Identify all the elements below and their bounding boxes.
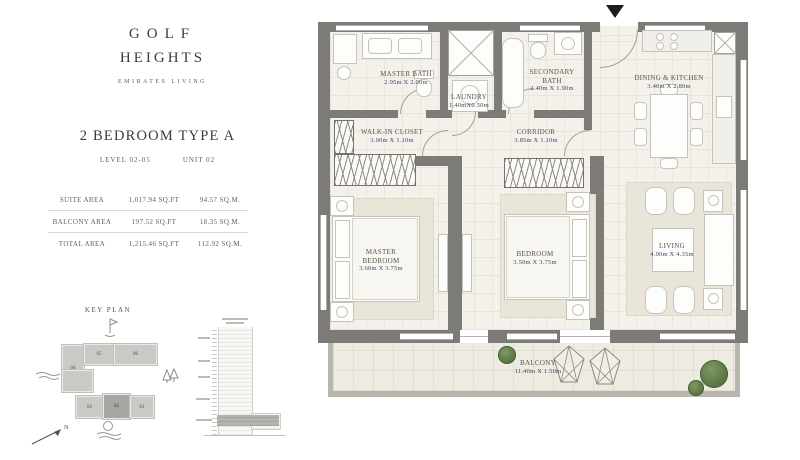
wall xyxy=(502,110,506,118)
water-icon xyxy=(34,370,62,382)
level-label: LEVEL 02-05 xyxy=(100,156,151,164)
dresser xyxy=(462,234,472,292)
stove-burner xyxy=(656,42,664,50)
stove-burner xyxy=(670,33,678,41)
sink xyxy=(368,38,392,54)
tower-level-mark xyxy=(196,398,210,400)
room-dims: 1.40mX0.50m xyxy=(438,102,500,110)
dining-chair xyxy=(634,128,647,146)
window xyxy=(400,333,453,340)
room-label-bedroom: BEDROOM 3.50m X 3.75m xyxy=(485,250,585,267)
table-row: TOTAL AREA 1,215.46 SQ.FT 112.92 SQ.M. xyxy=(48,232,248,254)
unit-label: UNIT 02 xyxy=(183,156,215,164)
area-row-sqm: 18.35 SQ.M. xyxy=(192,218,248,226)
room-dims: 4.00m X 4.35m xyxy=(622,251,722,259)
room-name: CORRIDOR xyxy=(486,128,586,137)
armchair xyxy=(645,286,667,314)
pool-icon xyxy=(103,421,113,431)
area-row-label: SUITE AREA xyxy=(48,196,116,204)
room-name: BEDROOM xyxy=(485,250,585,259)
stove-burner xyxy=(656,33,664,41)
room-label-corridor: CORRIDOR 3.85m X 1.10m xyxy=(486,128,586,145)
building-number: 02 xyxy=(114,404,119,409)
window xyxy=(740,60,747,160)
key-plan-building-highlighted: 02 xyxy=(103,394,130,419)
brand-logo-line2: HEIGHTS xyxy=(40,50,285,67)
sink xyxy=(561,37,575,50)
room-name: DINING & KITCHEN xyxy=(619,74,719,83)
plant-icon xyxy=(700,360,728,388)
shower xyxy=(333,34,357,64)
floorplan-brochure-page: GOLF HEIGHTS EMIRATES LIVING 2 BEDROOM T… xyxy=(0,0,800,460)
room-dims: 2.40m X 1.90m xyxy=(521,85,583,93)
wall xyxy=(448,156,462,343)
room-name: SECONDARY BATH xyxy=(521,68,583,85)
dining-table xyxy=(650,94,688,158)
room-dims: 3.85m X 1.10m xyxy=(486,137,586,145)
area-table: SUITE AREA 1,017.94 SQ.FT 94.57 SQ.M. BA… xyxy=(48,189,248,254)
wall xyxy=(426,110,440,118)
plant-icon xyxy=(688,380,704,396)
balcony-door-line xyxy=(460,336,488,337)
north-arrow-icon xyxy=(28,424,68,448)
table-row: BALCONY AREA 197.52 SQ.FT 18.35 SQ.M. xyxy=(48,210,248,232)
building-number: 01 xyxy=(140,405,145,410)
window xyxy=(336,25,428,31)
room-name: WALK-IN CLOSET xyxy=(342,128,442,137)
room-label-master-bedroom: MASTER BEDROOM 3.60m X 3.75m xyxy=(350,248,412,273)
sink xyxy=(398,38,422,54)
room-name: BALCONY xyxy=(488,359,588,368)
dresser xyxy=(438,234,448,292)
dining-chair xyxy=(660,158,678,169)
pillow xyxy=(335,220,350,258)
tower-level-mark xyxy=(198,337,210,339)
wall xyxy=(584,22,592,130)
area-row-sqm: 94.57 SQ.M. xyxy=(192,196,248,204)
dining-chair xyxy=(634,102,647,120)
room-name: LIVING xyxy=(622,242,722,251)
armchair xyxy=(645,187,667,215)
key-plan-building: 05 xyxy=(84,344,114,365)
room-dims: 2.95m X 2.00m xyxy=(376,79,436,87)
shaft-x-icon xyxy=(448,30,494,76)
room-label-laundry: LAUNDRY 1.40mX0.50m xyxy=(438,93,500,110)
level-unit-row: LEVEL 02-05 UNIT 02 xyxy=(25,156,290,164)
lamp-icon xyxy=(572,196,584,208)
lamp-icon xyxy=(336,200,348,212)
key-plan-building: 03 xyxy=(76,396,103,418)
key-plan-title: KEY PLAN xyxy=(60,306,156,314)
room-name: MASTER BEDROOM xyxy=(350,248,412,265)
dining-chair xyxy=(690,102,703,120)
building-number: 05 xyxy=(97,352,102,357)
side-table-decor xyxy=(708,293,719,304)
room-label-master-bath: MASTER BATH 2.95m X 2.00m xyxy=(376,70,436,87)
wall xyxy=(440,110,452,118)
building-number: 03 xyxy=(87,405,92,410)
tower-level-mark xyxy=(198,360,210,362)
waves-icon xyxy=(95,431,123,441)
area-row-sqft: 1,215.46 SQ.FT xyxy=(116,240,192,248)
room-dims: 11.40m X 1.50m xyxy=(488,368,588,376)
wall xyxy=(416,156,448,166)
room-label-balcony: BALCONY 11.40m X 1.50m xyxy=(488,359,588,376)
area-row-sqft: 197.52 SQ.FT xyxy=(116,218,192,226)
room-label-living: LIVING 4.00m X 4.35m xyxy=(622,242,722,259)
building-number: 06 xyxy=(133,352,138,357)
room-dims: 3.40m X 2.80m xyxy=(619,83,719,91)
room-name: LAUNDRY xyxy=(438,93,500,102)
key-plan-building: 01 xyxy=(130,396,154,418)
side-table-decor xyxy=(708,195,719,206)
room-name: MASTER BATH xyxy=(376,70,436,79)
window xyxy=(660,333,735,340)
armchair xyxy=(673,187,695,215)
tower-base-line xyxy=(204,435,286,436)
room-dims: 3.00m X 1.10m xyxy=(342,137,442,145)
kitchen-counter xyxy=(642,30,712,52)
tower-highlight-band xyxy=(217,415,279,426)
tower-level-mark xyxy=(198,376,210,378)
wall xyxy=(330,110,398,118)
room-dims: 3.60m X 3.75m xyxy=(350,265,412,273)
area-row-sqft: 1,017.94 SQ.FT xyxy=(116,196,192,204)
area-row-label: BALCONY AREA xyxy=(48,218,116,226)
toilet-tank xyxy=(528,34,548,42)
table-row: SUITE AREA 1,017.94 SQ.FT 94.57 SQ.M. xyxy=(48,189,248,210)
tree-icon xyxy=(156,362,182,386)
balcony-door-line xyxy=(560,336,610,337)
room-label-dining-kitchen: DINING & KITCHEN 3.40m X 2.80m xyxy=(619,74,719,91)
corridor-wardrobe xyxy=(504,158,584,188)
key-plan-building: 06 xyxy=(114,344,157,365)
wall xyxy=(534,110,584,118)
pillow xyxy=(335,261,350,299)
bath-sink xyxy=(337,66,351,80)
window xyxy=(520,25,580,31)
entrance-arrow-icon xyxy=(606,5,624,18)
armchair xyxy=(673,286,695,314)
toilet-bowl xyxy=(530,42,546,59)
lounge-chair-icon xyxy=(588,346,622,388)
lamp-icon xyxy=(572,304,584,316)
flag-icon xyxy=(101,317,119,339)
north-label: N xyxy=(64,424,69,431)
lamp-icon xyxy=(336,306,348,318)
window xyxy=(740,190,747,310)
dining-chair xyxy=(690,128,703,146)
kitchen-sink xyxy=(716,96,732,118)
key-plan-building-ext xyxy=(62,370,93,392)
brand-logo-line1: GOLF xyxy=(40,26,285,43)
shaft-x-icon xyxy=(714,32,736,54)
room-label-secondary-bath: SECONDARY BATH 2.40m X 1.90m xyxy=(521,68,583,93)
walk-in-closet-wardrobe xyxy=(334,154,416,186)
room-dims: 3.50m X 3.75m xyxy=(485,259,585,267)
tower-caption-mark xyxy=(222,318,248,320)
area-row-sqm: 112.92 SQ.M. xyxy=(192,240,248,248)
window xyxy=(320,215,327,310)
brand-tagline: EMIRATES LIVING xyxy=(40,79,285,85)
stove-burner xyxy=(670,42,678,50)
area-row-label: TOTAL AREA xyxy=(48,240,116,248)
tower-level-mark xyxy=(196,419,212,421)
room-label-walk-in-closet: WALK-IN CLOSET 3.00m X 1.10m xyxy=(342,128,442,145)
window xyxy=(507,333,557,340)
page-title: 2 BEDROOM TYPE A xyxy=(25,128,290,145)
tower-caption-mark xyxy=(226,322,244,324)
